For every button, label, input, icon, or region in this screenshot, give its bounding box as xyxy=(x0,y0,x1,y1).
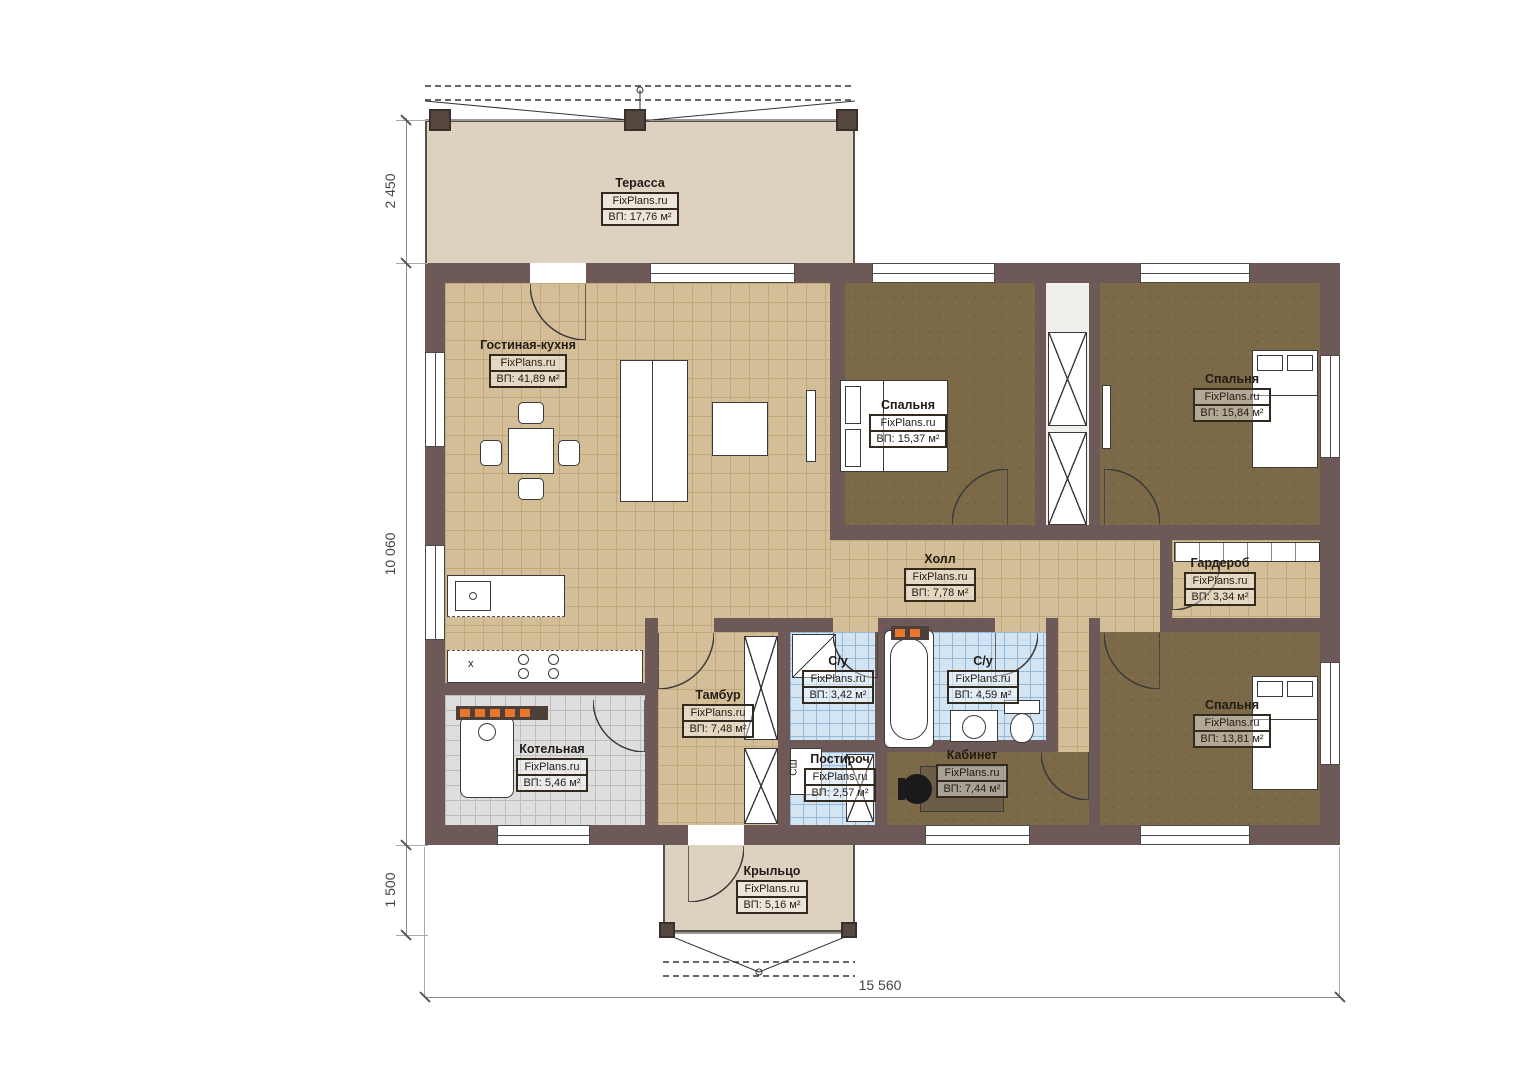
heating-convector xyxy=(456,706,548,720)
brand-label: FixPlans.ru xyxy=(1186,574,1253,588)
window xyxy=(425,352,445,447)
brand-label: FixPlans.ru xyxy=(1195,716,1268,730)
window xyxy=(497,825,590,845)
brand-label: FixPlans.ru xyxy=(949,672,1016,686)
terrace-column xyxy=(836,109,858,131)
room-label-hall: Холл FixPlans.ruВП: 7,78 м² xyxy=(880,552,1000,602)
room-area: ВП: 5,16 м² xyxy=(738,896,805,912)
floor-plan-canvas: 2 450 10 060 1 500 15 560 xyxy=(0,0,1528,1080)
room-name: Крыльцо xyxy=(712,864,832,878)
terrace-column xyxy=(624,109,646,131)
dining-chair xyxy=(558,440,580,466)
pillow xyxy=(1287,355,1313,371)
window xyxy=(1320,662,1340,765)
coffee-table xyxy=(712,402,768,456)
brand-label: FixPlans.ru xyxy=(806,770,873,784)
room-area: ВП: 3,42 м² xyxy=(804,686,871,702)
stove-burner xyxy=(548,654,559,665)
room-name: Гардероб xyxy=(1160,556,1280,570)
room-label-office: Кабинет FixPlans.ruВП: 7,44 м² xyxy=(912,748,1032,798)
wall xyxy=(645,618,658,700)
room-area: ВП: 4,59 м² xyxy=(949,686,1016,702)
room-name: Терасса xyxy=(580,176,700,190)
wall xyxy=(445,683,645,695)
closet-cabinet xyxy=(1048,332,1087,426)
dim-label-terrace-depth: 2 450 xyxy=(382,151,398,231)
room-area: ВП: 2,57 м² xyxy=(806,784,873,800)
heating-convector xyxy=(891,626,929,640)
wall xyxy=(1160,618,1320,632)
room-area: ВП: 13,81 м² xyxy=(1195,730,1268,746)
room-area: ВП: 7,78 м² xyxy=(906,584,973,600)
brand-label: FixPlans.ru xyxy=(1195,390,1268,404)
dining-chair xyxy=(518,402,544,424)
room-name: С/у xyxy=(790,654,886,668)
dim-label-house-width: 15 560 xyxy=(840,977,920,993)
porch-column xyxy=(841,922,857,938)
room-name: Спальня xyxy=(1172,372,1292,386)
window xyxy=(425,545,445,640)
brand-label: FixPlans.ru xyxy=(804,672,871,686)
extension-line xyxy=(424,847,425,997)
floor-hall-pocket xyxy=(1058,632,1089,752)
dining-chair xyxy=(518,478,544,500)
brand-label: FixPlans.ru xyxy=(938,766,1005,780)
wall xyxy=(1008,525,1104,540)
door-swing-bedroom-1 xyxy=(952,469,1008,525)
bathtub xyxy=(884,630,934,748)
door-swing-bedroom-3 xyxy=(1104,633,1160,689)
dimension-line-bottom xyxy=(425,997,1340,998)
stove-burner xyxy=(518,654,529,665)
room-label-vestibule: Тамбур FixPlans.ruВП: 7,48 м² xyxy=(658,688,778,738)
room-label-bedroom-2: Спальня FixPlans.ruВП: 15,84 м² xyxy=(1172,372,1292,422)
washbasin xyxy=(950,710,998,742)
room-area: ВП: 7,44 м² xyxy=(938,780,1005,796)
door-swing-vestibule xyxy=(658,633,714,689)
door-swing-office xyxy=(1041,752,1089,800)
room-area: ВП: 17,76 м² xyxy=(603,208,676,224)
washbasin-bowl xyxy=(962,715,986,739)
room-name: Холл xyxy=(880,552,1000,566)
wall xyxy=(1035,283,1046,525)
dining-table xyxy=(508,428,554,474)
porch-roof-overhang xyxy=(663,932,855,978)
wall xyxy=(1089,283,1100,525)
tv-panel xyxy=(806,390,816,462)
brand-label: FixPlans.ru xyxy=(491,356,564,370)
room-area: ВП: 5,46 м² xyxy=(518,774,585,790)
brand-label: FixPlans.ru xyxy=(871,416,944,430)
wall xyxy=(1089,618,1100,825)
room-label-terrace: Терасса FixPlans.ruВП: 17,76 м² xyxy=(580,176,700,226)
brand-label: FixPlans.ru xyxy=(738,882,805,896)
window xyxy=(1140,263,1250,283)
window xyxy=(925,825,1030,845)
wall xyxy=(714,618,833,632)
brand-label: FixPlans.ru xyxy=(603,194,676,208)
sink-mark: x xyxy=(468,658,474,670)
door-opening-porch xyxy=(688,825,744,845)
room-label-porch: Крыльцо FixPlans.ruВП: 5,16 м² xyxy=(712,864,832,914)
brand-label: FixPlans.ru xyxy=(684,706,751,720)
room-label-bath-2: С/у FixPlans.ruВП: 4,59 м² xyxy=(928,654,1038,704)
pillow xyxy=(1257,355,1283,371)
pillow xyxy=(1287,681,1313,697)
window xyxy=(872,263,995,283)
tv-panel-bedroom-2 xyxy=(1102,385,1111,449)
room-label-living: Гостиная-кухня FixPlans.ruВП: 41,89 м² xyxy=(468,338,588,388)
room-label-boiler: Котельная FixPlans.ruВП: 5,46 м² xyxy=(492,742,612,792)
sink-faucet xyxy=(469,592,477,600)
room-name: Кабинет xyxy=(912,748,1032,762)
room-area: ВП: 7,48 м² xyxy=(684,720,751,736)
room-name: Тамбур xyxy=(658,688,778,702)
toilet-bowl xyxy=(1010,713,1034,743)
room-area: ВП: 15,37 м² xyxy=(871,430,944,446)
dim-label-porch-depth: 1 500 xyxy=(382,850,398,930)
wall xyxy=(1160,525,1320,540)
wall xyxy=(645,752,658,825)
room-name: Гостиная-кухня xyxy=(468,338,588,352)
room-name: Постироч xyxy=(788,752,892,766)
room-label-wardrobe: Гардероб FixPlans.ruВП: 3,34 м² xyxy=(1160,556,1280,606)
dimension-line-left xyxy=(406,118,407,937)
door-opening-terrace xyxy=(530,263,586,283)
stove-burner xyxy=(518,668,529,679)
door-swing-bedroom-2 xyxy=(1104,469,1160,525)
pillow xyxy=(1257,681,1283,697)
room-label-laundry: Постироч FixPlans.ruВП: 2,57 м² xyxy=(788,752,892,802)
closet-cabinet xyxy=(1048,432,1087,525)
window xyxy=(1140,825,1250,845)
room-label-bath-1: С/у FixPlans.ruВП: 3,42 м² xyxy=(790,654,886,704)
room-label-bedroom-1: Спальня FixPlans.ruВП: 15,37 м² xyxy=(848,398,968,448)
porch-column xyxy=(659,922,675,938)
dining-chair xyxy=(480,440,502,466)
wall xyxy=(1046,618,1058,740)
office-chair-back xyxy=(898,778,905,800)
room-name: Спальня xyxy=(848,398,968,412)
vestibule-cabinet xyxy=(744,748,778,824)
terrace-column xyxy=(429,109,451,131)
boiler-dial xyxy=(478,723,496,741)
window xyxy=(1320,355,1340,458)
dim-label-house-height: 10 060 xyxy=(382,514,398,594)
room-name: С/у xyxy=(928,654,1038,668)
wall xyxy=(1160,610,1172,632)
room-name: Спальня xyxy=(1172,698,1292,712)
window xyxy=(650,263,795,283)
sofa xyxy=(620,360,688,502)
extension-line xyxy=(396,120,428,121)
stove-burner xyxy=(548,668,559,679)
extension-line xyxy=(1339,847,1340,997)
kitchen-counter-lower xyxy=(447,650,643,683)
door-swing-terrace xyxy=(530,284,586,340)
wall xyxy=(845,525,952,540)
room-area: ВП: 3,34 м² xyxy=(1186,588,1253,604)
brand-label: FixPlans.ru xyxy=(518,760,585,774)
extension-line xyxy=(396,263,428,264)
room-area: ВП: 15,84 м² xyxy=(1195,404,1268,420)
brand-label: FixPlans.ru xyxy=(906,570,973,584)
bathtub-basin xyxy=(890,638,928,740)
room-label-bedroom-3: Спальня FixPlans.ruВП: 13,81 м² xyxy=(1172,698,1292,748)
room-area: ВП: 41,89 м² xyxy=(491,370,564,386)
extension-line xyxy=(396,845,428,846)
room-name: Котельная xyxy=(492,742,612,756)
